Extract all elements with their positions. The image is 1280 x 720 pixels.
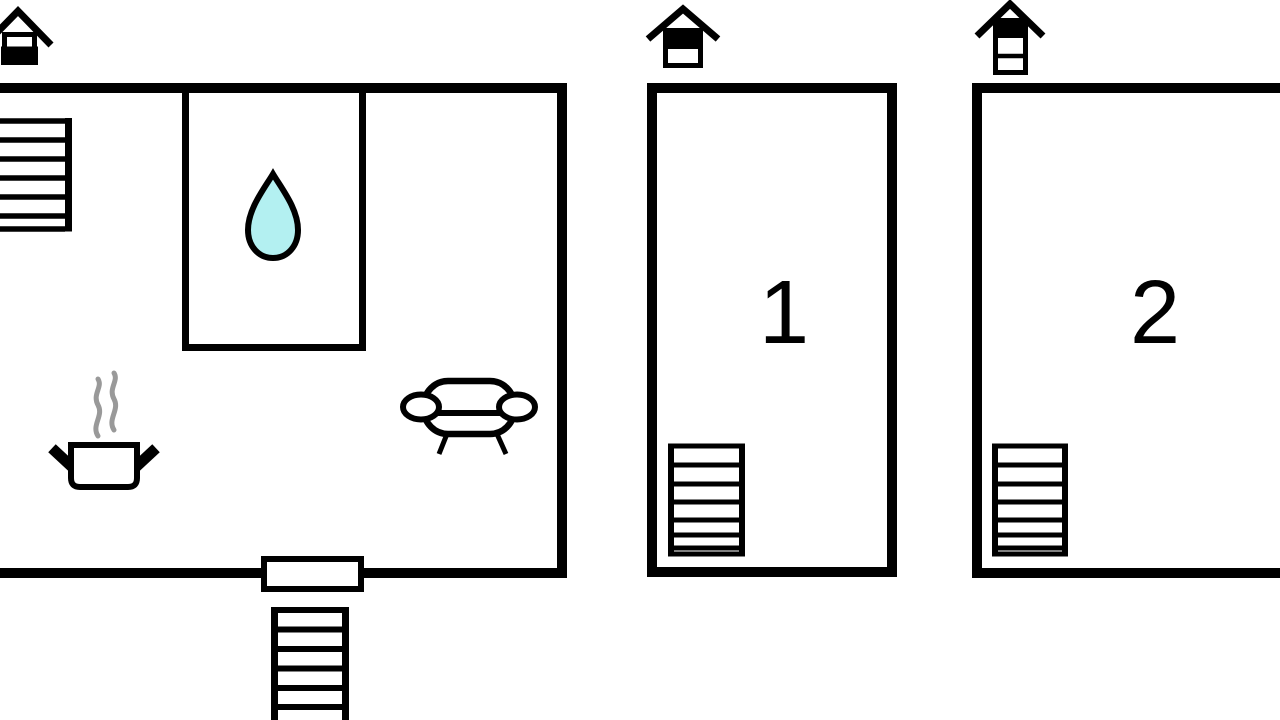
unit-2-label: 2 <box>1130 263 1180 363</box>
sofa-icon <box>403 381 535 454</box>
bathroom-left-wall <box>182 93 189 351</box>
entrance-door <box>264 559 361 589</box>
bathroom-room <box>182 93 366 351</box>
floor-plan-canvas: 1 2 <box>0 0 1280 720</box>
floor-indicator-unit2-icon <box>977 4 1043 73</box>
floor-indicator-unit1-icon <box>648 9 718 66</box>
sofa-leg-right <box>497 434 506 454</box>
interior-staircase-icon <box>0 118 69 232</box>
highlighted-floor-band <box>663 28 703 49</box>
unit1-staircase-icon <box>668 444 745 557</box>
unit-2-left-wall <box>972 83 982 578</box>
floor-plan-page: 1 2 <box>0 0 1280 720</box>
unit-1-label: 1 <box>759 263 809 363</box>
exterior-staircase-icon <box>271 607 349 720</box>
floor-indicator-main-icon <box>0 11 51 65</box>
highlighted-floor-band <box>1 47 38 66</box>
main-unit-room <box>0 83 567 578</box>
steam-wave-left <box>96 379 100 436</box>
unit-2-room: 2 <box>972 83 1280 578</box>
water-drop-icon <box>248 174 298 258</box>
kitchen-pot-steam-icon <box>56 373 152 487</box>
bathroom-right-wall <box>359 93 366 351</box>
main-top-wall <box>0 83 567 93</box>
sofa-armrest-right <box>499 395 535 420</box>
unit-2-bottom-wall <box>972 568 1280 578</box>
sofa-armrest-left <box>403 395 439 420</box>
main-right-wall <box>557 83 567 578</box>
pot-handle-left <box>56 452 70 465</box>
pot-handle-right <box>138 452 152 465</box>
unit-2-top-wall <box>972 83 1280 93</box>
pot-body <box>71 445 137 487</box>
bathroom-bottom-wall <box>182 344 366 351</box>
unit2-staircase-icon <box>992 444 1068 557</box>
unit-1-room: 1 <box>652 88 892 572</box>
steam-wave-right <box>112 373 116 430</box>
